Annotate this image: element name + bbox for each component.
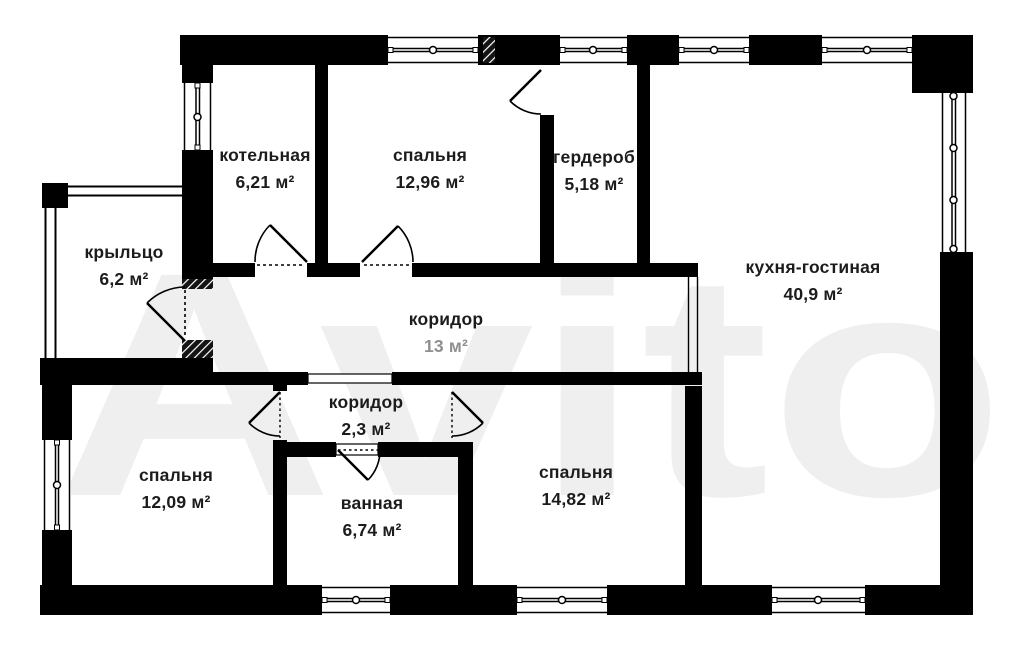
room-area: 40,9 м² — [746, 281, 881, 308]
room-label-kitchen-living: кухня-гостиная 40,9 м² — [746, 254, 881, 308]
room-label-wardrobe: гердероб 5,18 м² — [553, 144, 635, 198]
floor-plan-page: Avito — [0, 0, 1023, 662]
room-name: коридор — [329, 389, 404, 416]
room-area: 14,82 м² — [539, 486, 613, 513]
floor-plan-drawing: Avito — [0, 0, 1023, 662]
room-name: коридор — [409, 306, 484, 333]
window — [822, 36, 912, 64]
room-name: гердероб — [553, 144, 635, 171]
room-name: крыльцо — [84, 239, 163, 266]
room-area: 6,2 м² — [84, 266, 163, 293]
vent-shaft-hatch — [483, 37, 495, 63]
entrance-threshold-hatch — [182, 279, 213, 289]
entrance-threshold-hatch — [182, 340, 213, 358]
room-name: ванная — [341, 490, 404, 517]
room-label-bedroom-top: спальня 12,96 м² — [393, 142, 467, 196]
window — [560, 36, 627, 64]
room-area: 5,18 м² — [553, 171, 635, 198]
room-area: 13 м² — [409, 333, 484, 360]
room-name: спальня — [539, 459, 613, 486]
cased-opening — [308, 374, 392, 383]
room-area: 6,74 м² — [341, 517, 404, 544]
window — [517, 586, 607, 614]
room-area: 6,21 м² — [219, 169, 310, 196]
room-area: 12,09 м² — [139, 489, 213, 516]
room-area: 12,96 м² — [393, 169, 467, 196]
window — [43, 440, 71, 530]
room-name: котельная — [219, 142, 310, 169]
window — [679, 36, 749, 64]
window — [772, 586, 865, 614]
room-label-bedroom-left: спальня 12,09 м² — [139, 462, 213, 516]
room-label-corridor-main: коридор 13 м² — [409, 306, 484, 360]
room-name: спальня — [393, 142, 467, 169]
room-name: спальня — [139, 462, 213, 489]
room-label-boiler: котельная 6,21 м² — [219, 142, 310, 196]
room-label-porch: крыльцо 6,2 м² — [84, 239, 163, 293]
room-label-corridor-small: коридор 2,3 м² — [329, 389, 404, 443]
room-area: 2,3 м² — [329, 416, 404, 443]
window — [388, 36, 478, 64]
room-label-bedroom-right: спальня 14,82 м² — [539, 459, 613, 513]
window — [183, 83, 212, 150]
room-name: кухня-гостиная — [746, 254, 881, 281]
window — [941, 93, 971, 253]
window — [322, 586, 390, 614]
room-label-bathroom: ванная 6,74 м² — [341, 490, 404, 544]
